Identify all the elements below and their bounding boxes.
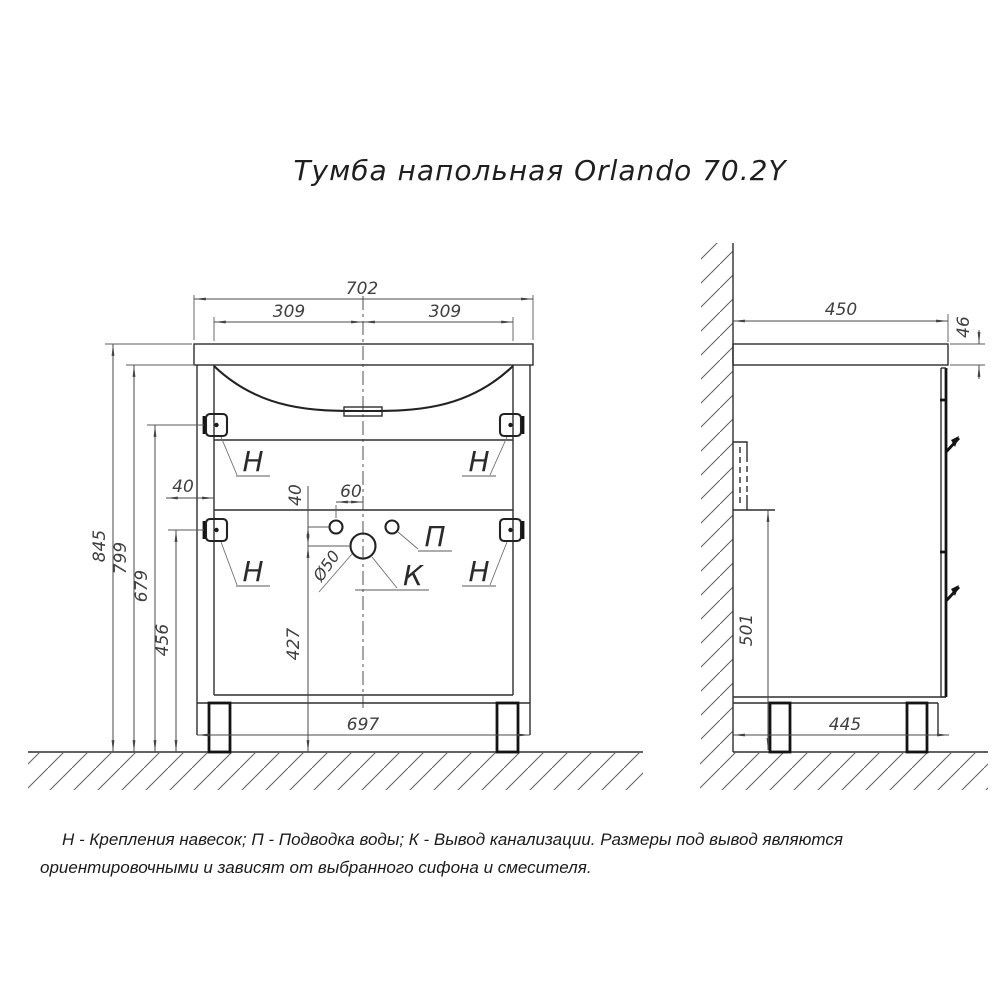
bracket-bottom-left [204,519,227,541]
dim-rail-height: 501 [737,614,757,646]
countertop-side [733,344,948,365]
dim-basin-left: 309 [273,302,305,322]
dim-base-width: 697 [347,715,380,735]
note-line-2: ориентировочными и зависят от выбранного… [40,858,592,877]
door-side [940,368,947,697]
countertop [194,344,533,365]
hanging-rail [733,442,775,510]
label-drain: К [403,559,424,592]
side-view: 450 46 501 445 [700,243,988,790]
dim-drain-diameter: Ø50 [309,547,344,586]
handle-top [946,436,959,452]
dim-height-under-top: 799 [111,542,131,574]
foot-left [209,703,230,752]
front-callouts: Н Н Н Н П К [221,437,507,592]
label-bracket-bottom-left: Н [242,555,263,588]
water-supply-hole-left [330,521,343,534]
wall-hatch [701,243,733,753]
foot-right [497,703,518,752]
dim-base-depth: 445 [829,715,861,735]
cabinet-body [197,365,530,735]
floor-hatch [28,753,643,790]
label-bracket-top-right: Н [468,445,489,478]
dim-pipes-gap: 40 [286,484,306,506]
legend-note: Н - Крепления навесок; П - Подводка воды… [40,830,843,877]
dim-bracket-offset: 40 [172,477,194,497]
handle-bottom [946,585,959,601]
label-water-supply: П [424,520,445,553]
bracket-top-left [204,414,227,436]
bracket-top-right [500,414,523,436]
dim-depth-top: 450 [825,300,857,320]
dim-basin-right: 309 [429,302,461,322]
dim-water-offset: 60 [340,482,362,502]
note-line-1: Н - Крепления навесок; П - Подводка воды… [62,830,843,849]
bracket-bottom-right [500,519,523,541]
foot-back [770,703,790,752]
dim-drain-height: 427 [284,628,304,661]
dim-top-bracket-height: 679 [132,570,152,602]
front-view: 702 309 309 845 799 679 456 40 [28,279,643,790]
technical-drawing: Тумба напольная Orlando 70.2Y [0,0,1000,1000]
water-supply-hole-right [386,521,399,534]
foot-front [907,703,927,752]
dim-height-overall: 845 [90,530,110,562]
dim-overall-width: 702 [346,279,378,299]
dim-bottom-bracket-height: 456 [153,624,173,657]
page-title: Тумба напольная Orlando 70.2Y [293,154,787,187]
floor-hatch-side [700,753,988,790]
dim-countertop-thickness: 46 [954,316,974,338]
front-dimensions: 702 309 309 845 799 679 456 40 [90,279,533,752]
label-bracket-bottom-right: Н [468,555,489,588]
label-bracket-top-left: Н [242,445,263,478]
basin-curve [214,366,513,411]
